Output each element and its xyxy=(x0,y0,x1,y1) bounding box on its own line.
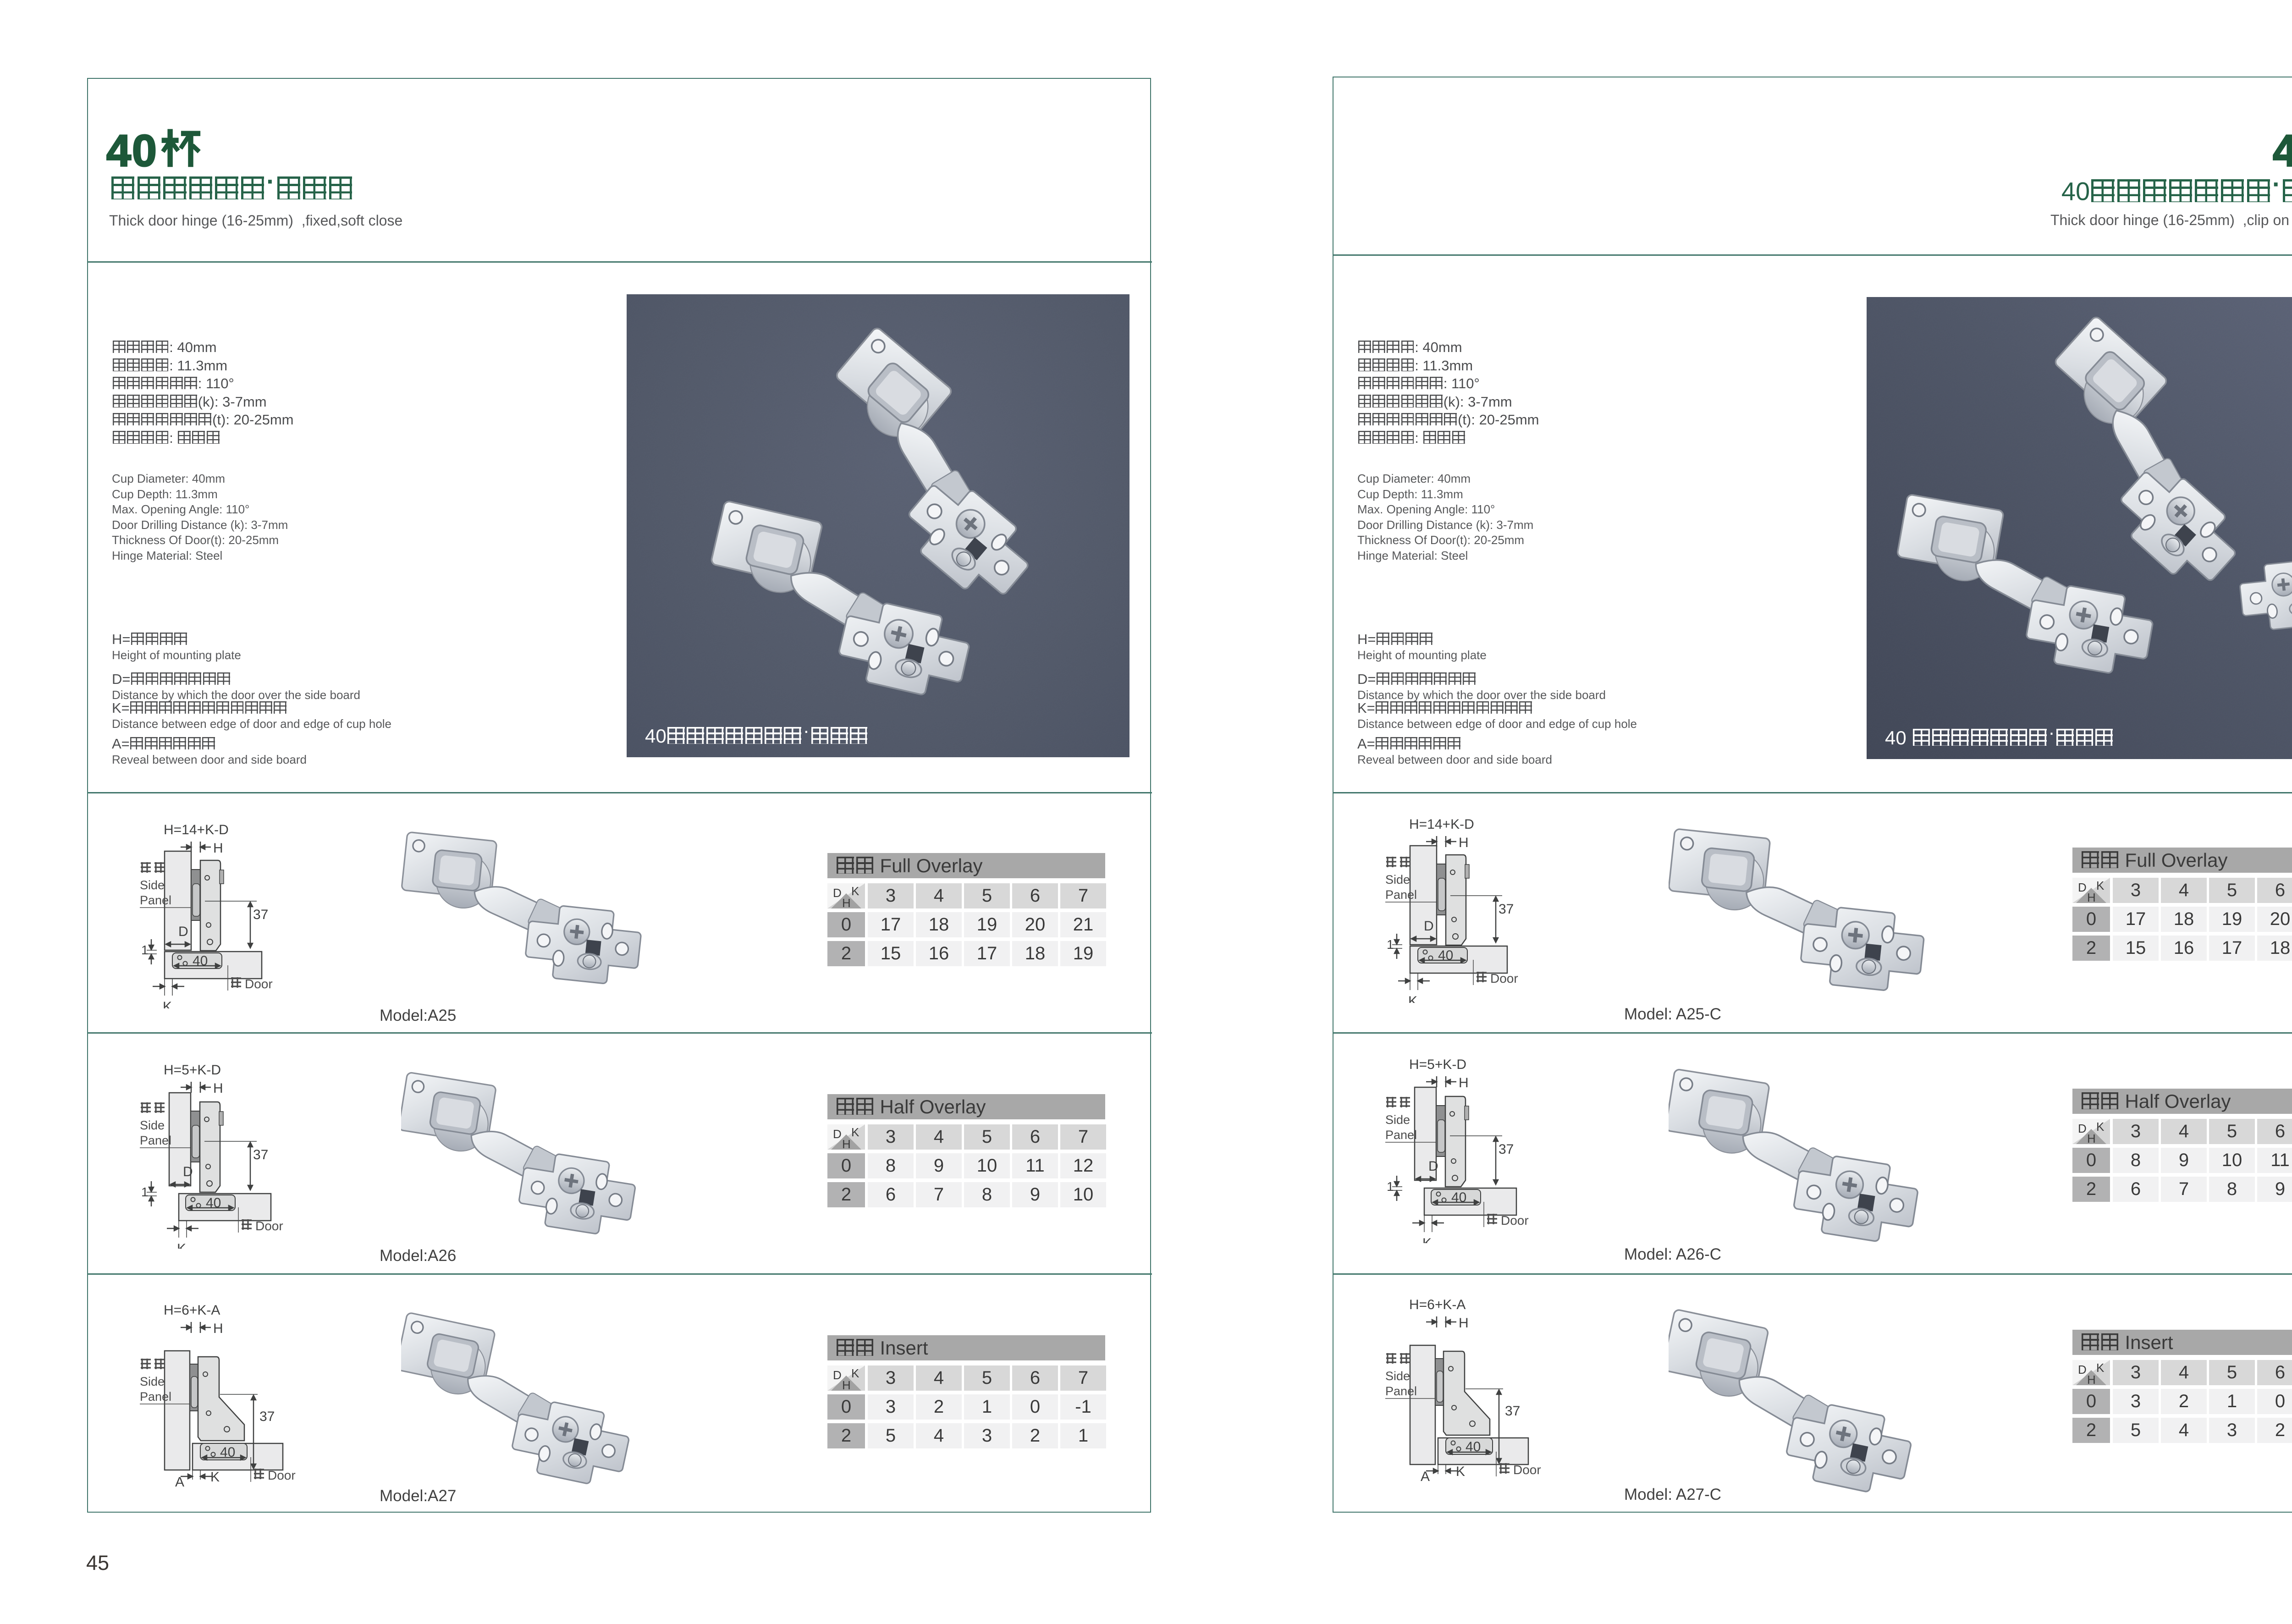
svg-text:Panel: Panel xyxy=(140,1134,171,1147)
svg-text:Side: Side xyxy=(140,1375,165,1388)
svg-text:D: D xyxy=(178,924,188,939)
svg-text:H=6+K-A: H=6+K-A xyxy=(1409,1297,1466,1312)
svg-text:Panel: Panel xyxy=(1385,888,1417,902)
svg-text:H: H xyxy=(2087,1373,2096,1385)
svg-text:H=14+K-D: H=14+K-D xyxy=(1409,817,1474,832)
svg-text:H: H xyxy=(842,1137,851,1150)
svg-text:A: A xyxy=(1421,1469,1430,1483)
svg-text:K: K xyxy=(2096,879,2105,892)
svg-text:D: D xyxy=(833,1127,842,1141)
svg-text:K: K xyxy=(851,884,859,898)
svg-text:D: D xyxy=(2078,1363,2087,1376)
svg-text:K: K xyxy=(2096,1120,2105,1134)
svg-text:H=6+K-A: H=6+K-A xyxy=(164,1303,220,1318)
svg-text:H=5+K-D: H=5+K-D xyxy=(164,1062,221,1078)
svg-text:K: K xyxy=(2096,1361,2105,1375)
svg-text:K: K xyxy=(851,1125,859,1139)
svg-text:Panel: Panel xyxy=(1385,1128,1417,1142)
svg-text:Side: Side xyxy=(1385,1113,1410,1127)
svg-text:H: H xyxy=(213,1321,223,1336)
svg-text:Panel: Panel xyxy=(140,893,171,907)
svg-text:Door: Door xyxy=(1490,971,1518,985)
svg-text:K: K xyxy=(177,1241,186,1249)
svg-text:K: K xyxy=(210,1470,220,1485)
svg-text:Side: Side xyxy=(140,878,165,892)
svg-text:H: H xyxy=(842,896,851,908)
svg-text:Side: Side xyxy=(1385,873,1410,886)
svg-text:D: D xyxy=(2078,881,2087,894)
svg-text:Side: Side xyxy=(1385,1369,1410,1383)
svg-text:H: H xyxy=(2087,1132,2096,1144)
svg-text:H: H xyxy=(1459,1075,1469,1090)
svg-text:K: K xyxy=(851,1366,859,1380)
svg-text:H: H xyxy=(842,1378,851,1391)
svg-text:H: H xyxy=(1459,1316,1469,1331)
svg-text:D: D xyxy=(1428,1159,1438,1174)
svg-text:Door: Door xyxy=(245,977,273,991)
svg-text:D: D xyxy=(833,1368,842,1382)
svg-text:37: 37 xyxy=(253,907,268,922)
svg-text:H=5+K-D: H=5+K-D xyxy=(1409,1057,1466,1072)
svg-text:37: 37 xyxy=(1499,902,1514,917)
svg-text:H: H xyxy=(213,841,223,856)
svg-text:A: A xyxy=(175,1475,184,1489)
svg-text:37: 37 xyxy=(1505,1404,1520,1419)
svg-text:H=14+K-D: H=14+K-D xyxy=(164,822,229,837)
svg-text:D: D xyxy=(1424,919,1434,934)
svg-text:Door: Door xyxy=(1513,1463,1541,1477)
svg-text:K: K xyxy=(163,999,172,1008)
svg-text:D: D xyxy=(833,886,842,900)
svg-text:Door: Door xyxy=(268,1468,296,1482)
svg-text:D: D xyxy=(183,1164,193,1179)
svg-text:37: 37 xyxy=(253,1147,268,1162)
svg-text:Panel: Panel xyxy=(1385,1384,1417,1398)
svg-text:K: K xyxy=(1408,994,1417,1003)
svg-text:Door: Door xyxy=(1501,1213,1529,1228)
svg-text:Panel: Panel xyxy=(140,1390,171,1404)
svg-text:Side: Side xyxy=(140,1118,165,1132)
svg-text:H: H xyxy=(1459,835,1469,850)
svg-text:H: H xyxy=(213,1081,223,1096)
svg-text:H: H xyxy=(2087,891,2096,903)
svg-text:Door: Door xyxy=(255,1219,283,1233)
svg-text:37: 37 xyxy=(1499,1142,1514,1157)
svg-text:K: K xyxy=(1422,1236,1432,1243)
svg-text:D: D xyxy=(2078,1122,2087,1135)
svg-text:K: K xyxy=(1456,1464,1465,1479)
svg-text:37: 37 xyxy=(259,1409,275,1424)
